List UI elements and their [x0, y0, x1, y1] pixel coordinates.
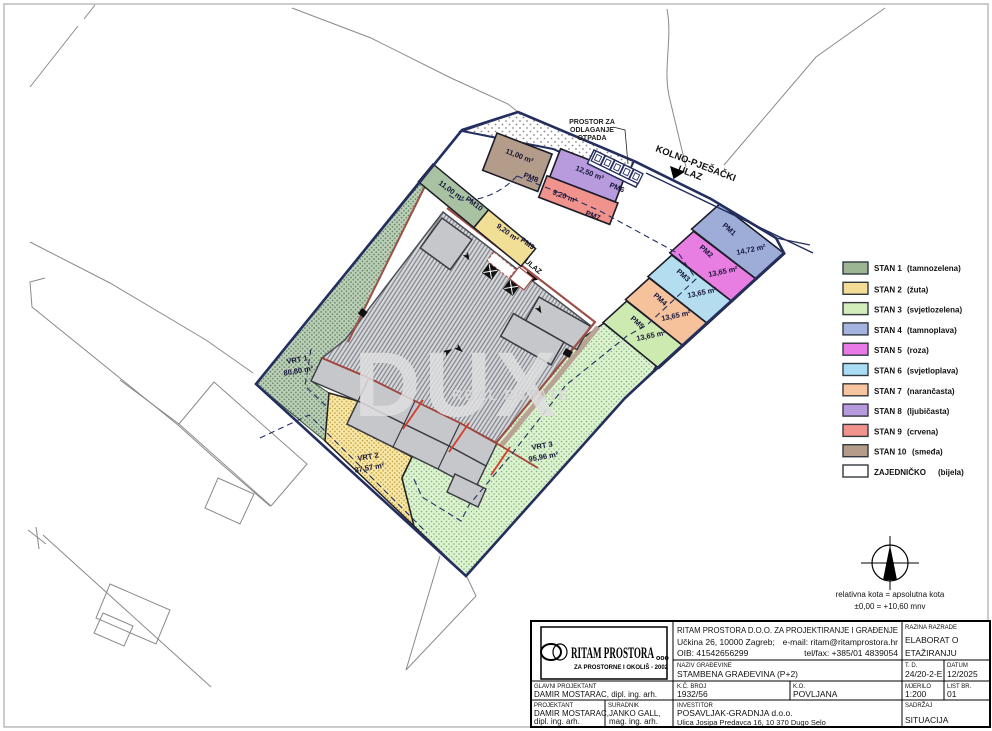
- svg-text:(tamnoplava): (tamnoplava): [907, 326, 957, 335]
- svg-text:REAL ESTATE: REAL ESTATE: [452, 387, 570, 404]
- svg-text:(roza): (roza): [907, 346, 929, 355]
- svg-text:mag. ing. arh.: mag. ing. arh.: [609, 717, 658, 726]
- svg-text:STAN 1: STAN 1: [874, 264, 902, 273]
- svg-text:Ulica Josipa Predavca 16, 10 3: Ulica Josipa Predavca 16, 10 370 Dugo Se…: [677, 718, 826, 727]
- svg-text:ооо: ооо: [656, 655, 669, 662]
- svg-text:(bijela): (bijela): [938, 468, 964, 477]
- svg-text:RITAM PROSTORA: RITAM PROSTORA: [571, 645, 654, 662]
- svg-text:(ljubičasta): (ljubičasta): [907, 407, 950, 416]
- svg-text:STAMBENA GRAĐEVINA (P+2): STAMBENA GRAĐEVINA (P+2): [677, 669, 798, 679]
- svg-text:PROSTOR ZA: PROSTOR ZA: [569, 119, 615, 126]
- svg-text:dipl. ing. arh.: dipl. ing. arh.: [534, 717, 580, 726]
- svg-text:OIB: 41542656299: OIB: 41542656299: [677, 648, 749, 658]
- svg-text:Učkina 26, 10000 Zagreb;: Učkina 26, 10000 Zagreb;: [677, 637, 775, 647]
- svg-text:1932/56: 1932/56: [677, 689, 708, 699]
- svg-text:01: 01: [947, 689, 957, 699]
- svg-text:relativna kota = apsolutna kot: relativna kota = apsolutna kota: [836, 590, 945, 599]
- svg-text:ODLAGANJE: ODLAGANJE: [570, 127, 614, 134]
- svg-text:STAN 2: STAN 2: [874, 285, 902, 294]
- svg-text:OTPADA: OTPADA: [577, 135, 606, 142]
- svg-text:(žuta): (žuta): [907, 285, 929, 294]
- svg-text:STAN 6: STAN 6: [874, 367, 902, 376]
- svg-text:1:200: 1:200: [905, 689, 927, 699]
- svg-text:RAZINA RAZRADE: RAZINA RAZRADE: [905, 625, 957, 631]
- svg-text:DUX: DUX: [354, 334, 560, 436]
- svg-text:SITUACIJA: SITUACIJA: [905, 715, 949, 725]
- svg-text:STAN 3: STAN 3: [874, 306, 902, 315]
- svg-text:DAMIR MOSTARAC, dipl. ing. arh: DAMIR MOSTARAC, dipl. ing. arh.: [534, 690, 657, 699]
- svg-text:STAN 10: STAN 10: [874, 448, 907, 457]
- svg-text:(svjetlozelena): (svjetlozelena): [907, 306, 962, 315]
- svg-text:(svjetloplava): (svjetloplava): [907, 367, 958, 376]
- svg-text:POVLJANA: POVLJANA: [793, 689, 838, 699]
- svg-text:ZAJEDNIČKO: ZAJEDNIČKO: [874, 468, 926, 477]
- svg-text:RITAM PROSTORA D.O.O. ZA PROJE: RITAM PROSTORA D.O.O. ZA PROJEKTIRANJE I…: [677, 625, 898, 635]
- svg-text:(narančasta): (narančasta): [907, 387, 955, 396]
- svg-text:ZA PROSTORNE I OKOLIŠ - 2002: ZA PROSTORNE I OKOLIŠ - 2002: [574, 663, 669, 671]
- svg-text:e-mail: ritam@ritamprostora.hr: e-mail: ritam@ritamprostora.hr: [783, 637, 899, 647]
- svg-text:STAN 4: STAN 4: [874, 326, 902, 335]
- svg-text:tel/fax: +385/01 4839054: tel/fax: +385/01 4839054: [804, 648, 898, 658]
- svg-text:(smeđa): (smeđa): [912, 448, 943, 457]
- svg-text:STAN 7: STAN 7: [874, 387, 902, 396]
- svg-text:±0,00 = +10,60 mnv: ±0,00 = +10,60 mnv: [854, 602, 925, 611]
- svg-text:24/20-2-E: 24/20-2-E: [905, 669, 943, 679]
- svg-text:STAN 9: STAN 9: [874, 427, 902, 436]
- svg-text:ELABORAT O: ELABORAT O: [905, 635, 959, 645]
- svg-text:STAN 5: STAN 5: [874, 346, 902, 355]
- svg-text:12/2025: 12/2025: [947, 669, 978, 679]
- svg-text:SADRŽAJ: SADRŽAJ: [905, 701, 932, 709]
- svg-text:POSAVLJAK-GRADNJA d.o.o.: POSAVLJAK-GRADNJA d.o.o.: [677, 708, 793, 718]
- svg-text:ETAŽIRANJU: ETAŽIRANJU: [905, 648, 957, 658]
- svg-text:STAN 8: STAN 8: [874, 407, 902, 416]
- svg-text:(tamnozelena): (tamnozelena): [907, 264, 961, 273]
- svg-text:(crvena): (crvena): [907, 427, 938, 436]
